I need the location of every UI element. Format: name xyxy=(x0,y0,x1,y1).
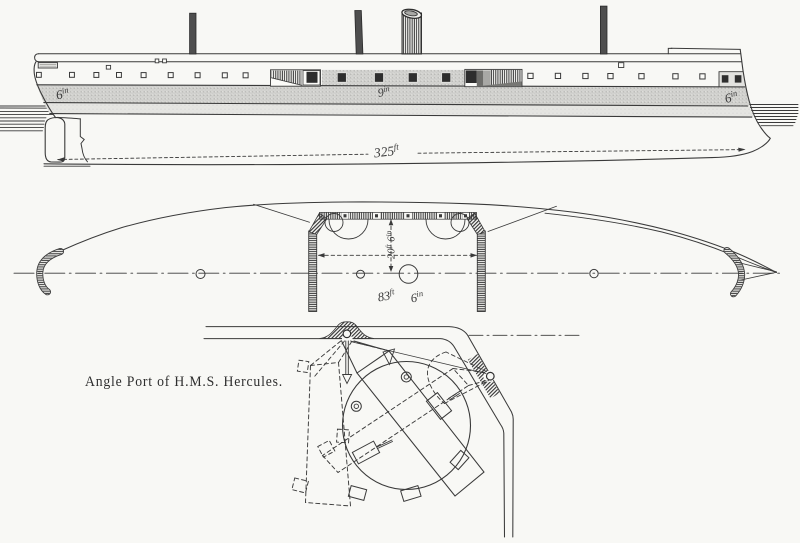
svg-text:Angle Port of H.M.S. Hercules.: Angle Port of H.M.S. Hercules. xyxy=(85,373,283,390)
